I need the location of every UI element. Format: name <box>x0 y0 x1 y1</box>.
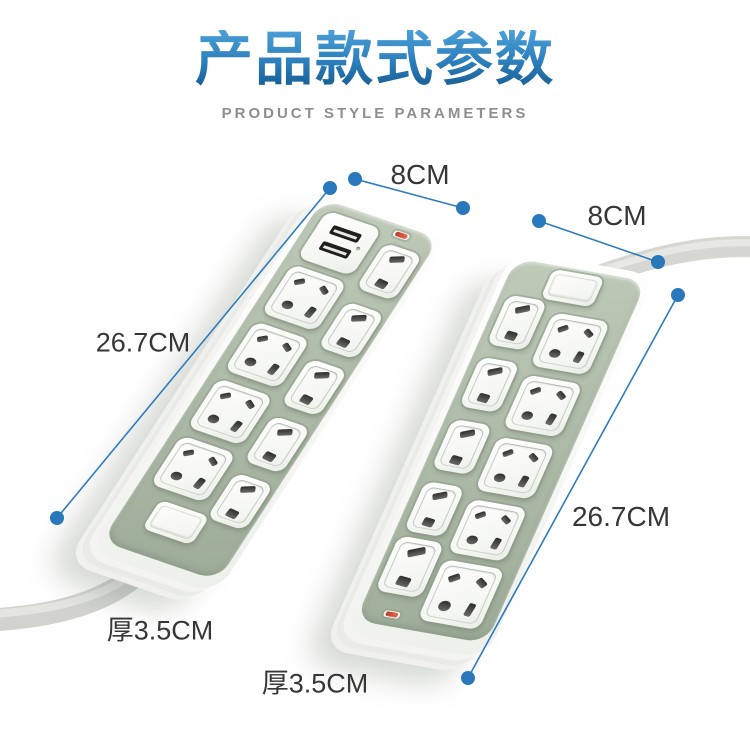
width-label-left: 8CM <box>390 159 449 191</box>
length-label-right: 26.7CM <box>572 501 670 533</box>
length-label-left: 26.7CM <box>96 328 191 359</box>
page-title: 产品款式参数 <box>0 30 750 91</box>
endpoint-dot <box>456 201 470 215</box>
usb-port-icon <box>318 241 352 259</box>
endpoint-dot <box>671 288 685 302</box>
endpoint-dot <box>532 214 546 228</box>
endpoint-dot <box>348 172 362 186</box>
reset-hole-icon <box>355 246 361 251</box>
header: 产品款式参数 PRODUCT STYLE PARAMETERS <box>0 30 750 122</box>
thickness-label-left: 厚3.5CM <box>107 609 214 648</box>
endpoint-dot <box>651 255 665 269</box>
width-label-right: 8CM <box>587 200 646 232</box>
page-subtitle: PRODUCT STYLE PARAMETERS <box>0 105 750 122</box>
endpoint-dot <box>461 671 475 685</box>
endpoint-dot <box>50 511 64 525</box>
right-power-cord-highlight <box>598 243 750 272</box>
thickness-label-right: 厚3.5CM <box>262 662 369 701</box>
usb-port-icon <box>329 225 363 243</box>
product-parameters-page: 产品款式参数 PRODUCT STYLE PARAMETERS <box>0 0 750 750</box>
